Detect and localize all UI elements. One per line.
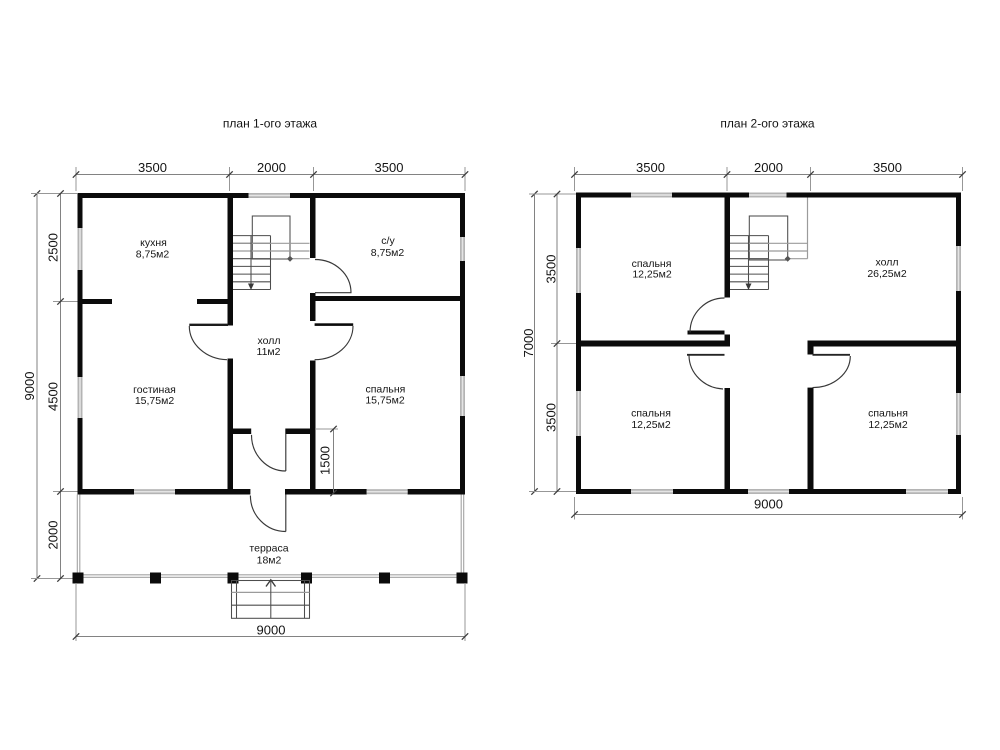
svg-text:9000: 9000: [257, 623, 286, 638]
svg-text:9000: 9000: [22, 372, 37, 401]
svg-text:18м2: 18м2: [257, 555, 282, 567]
svg-text:12,25м2: 12,25м2: [868, 419, 907, 431]
svg-text:26,25м2: 26,25м2: [867, 268, 906, 280]
svg-text:8,75м2: 8,75м2: [371, 247, 405, 259]
svg-text:план 2-ого этажа: план 2-ого этажа: [720, 117, 815, 131]
svg-text:2500: 2500: [46, 233, 61, 262]
svg-text:1500: 1500: [318, 446, 333, 475]
svg-text:3500: 3500: [873, 160, 902, 175]
svg-text:2000: 2000: [754, 160, 783, 175]
svg-text:холл: холл: [876, 257, 899, 269]
svg-text:15,75м2: 15,75м2: [135, 395, 174, 407]
svg-text:4500: 4500: [46, 382, 61, 411]
svg-text:спальня: спальня: [631, 408, 671, 420]
svg-text:3500: 3500: [544, 255, 559, 284]
svg-text:с/у: с/у: [381, 235, 395, 247]
svg-text:кухня: кухня: [140, 237, 167, 249]
svg-text:3500: 3500: [375, 160, 404, 175]
svg-text:2000: 2000: [46, 521, 61, 550]
svg-text:терраса: терраса: [249, 543, 288, 555]
svg-text:3500: 3500: [544, 403, 559, 432]
svg-text:11м2: 11м2: [257, 346, 281, 358]
svg-text:8,75м2: 8,75м2: [136, 249, 170, 261]
svg-text:2000: 2000: [257, 160, 286, 175]
svg-text:план 1-ого этажа: план 1-ого этажа: [223, 117, 318, 131]
svg-text:15,75м2: 15,75м2: [365, 395, 404, 407]
svg-text:7000: 7000: [521, 329, 536, 358]
svg-text:12,25м2: 12,25м2: [631, 419, 670, 431]
svg-text:3500: 3500: [636, 160, 665, 175]
svg-text:9000: 9000: [754, 497, 783, 512]
svg-text:12,25м2: 12,25м2: [632, 269, 671, 281]
svg-text:3500: 3500: [138, 160, 167, 175]
svg-text:спальня: спальня: [868, 408, 908, 420]
